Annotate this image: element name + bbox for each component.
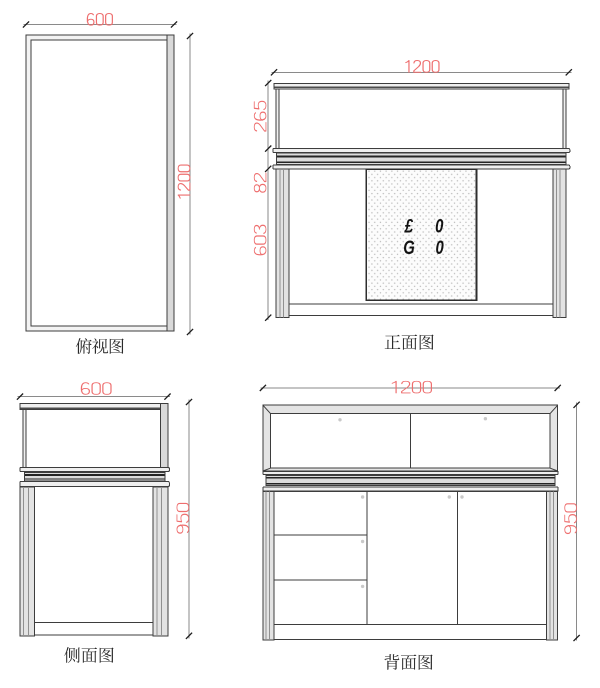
svg-text:0: 0	[435, 214, 444, 237]
svg-text:0: 0	[435, 236, 444, 259]
svg-text:G: G	[403, 236, 415, 259]
svg-text:£: £	[404, 214, 413, 237]
